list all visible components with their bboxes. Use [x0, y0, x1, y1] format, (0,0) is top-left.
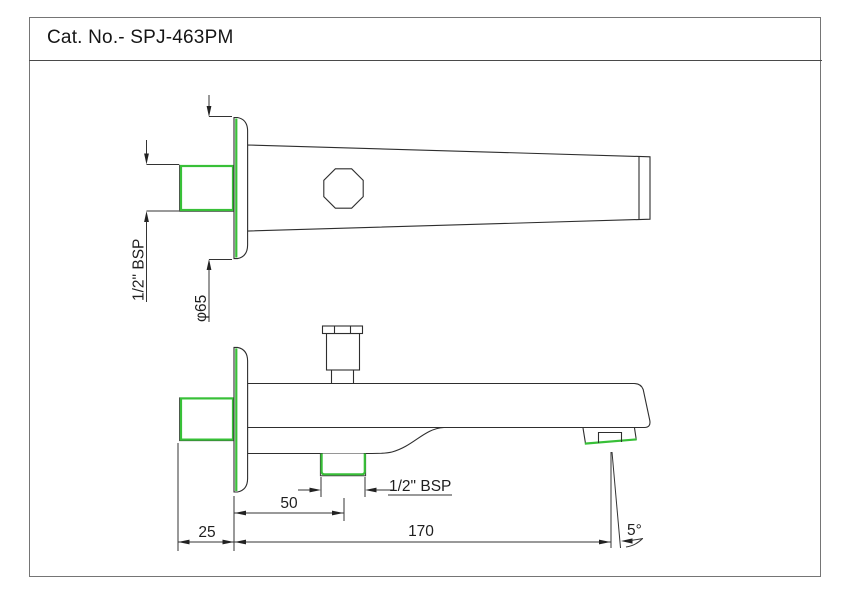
outlet-distance-label: 50: [280, 495, 298, 512]
tip-mouth-highlight: [585, 439, 637, 443]
outlet-nipple: [322, 454, 365, 475]
dim-wall-nipple: 25: [178, 443, 234, 551]
dim-tip-angle: 5°: [611, 452, 643, 548]
dim-spout-length: 170: [234, 523, 611, 544]
spout-length-label: 170: [408, 523, 434, 540]
spout-technical-drawing: φ65 1/2" BSP: [0, 0, 845, 599]
plan-view: [180, 118, 650, 259]
dim-outlet-thread: 1/2" BSP: [298, 477, 452, 497]
inlet-thread-label: 1/2" BSP: [131, 239, 148, 301]
dim-outlet-distance: 50: [234, 495, 344, 521]
plan-spout-body: [248, 145, 651, 231]
tip-mouth: [583, 428, 637, 444]
dim-inlet-thread: 1/2" BSP: [131, 140, 180, 302]
catalog-drawing-page: Cat. No.- SPJ-463PM φ65: [0, 0, 845, 599]
outlet-thread-label: 1/2" BSP: [389, 478, 451, 495]
plan-inlet-nipple: [181, 166, 233, 210]
tip-angle-label: 5°: [627, 522, 642, 539]
elevation-view: [180, 326, 650, 492]
wall-nipple-label: 25: [198, 524, 215, 541]
elevation-inlet-nipple: [181, 398, 233, 439]
diverter-knob: [323, 326, 363, 384]
flange-diameter-label: φ65: [193, 295, 210, 322]
plan-octagon-hole: [324, 169, 363, 208]
